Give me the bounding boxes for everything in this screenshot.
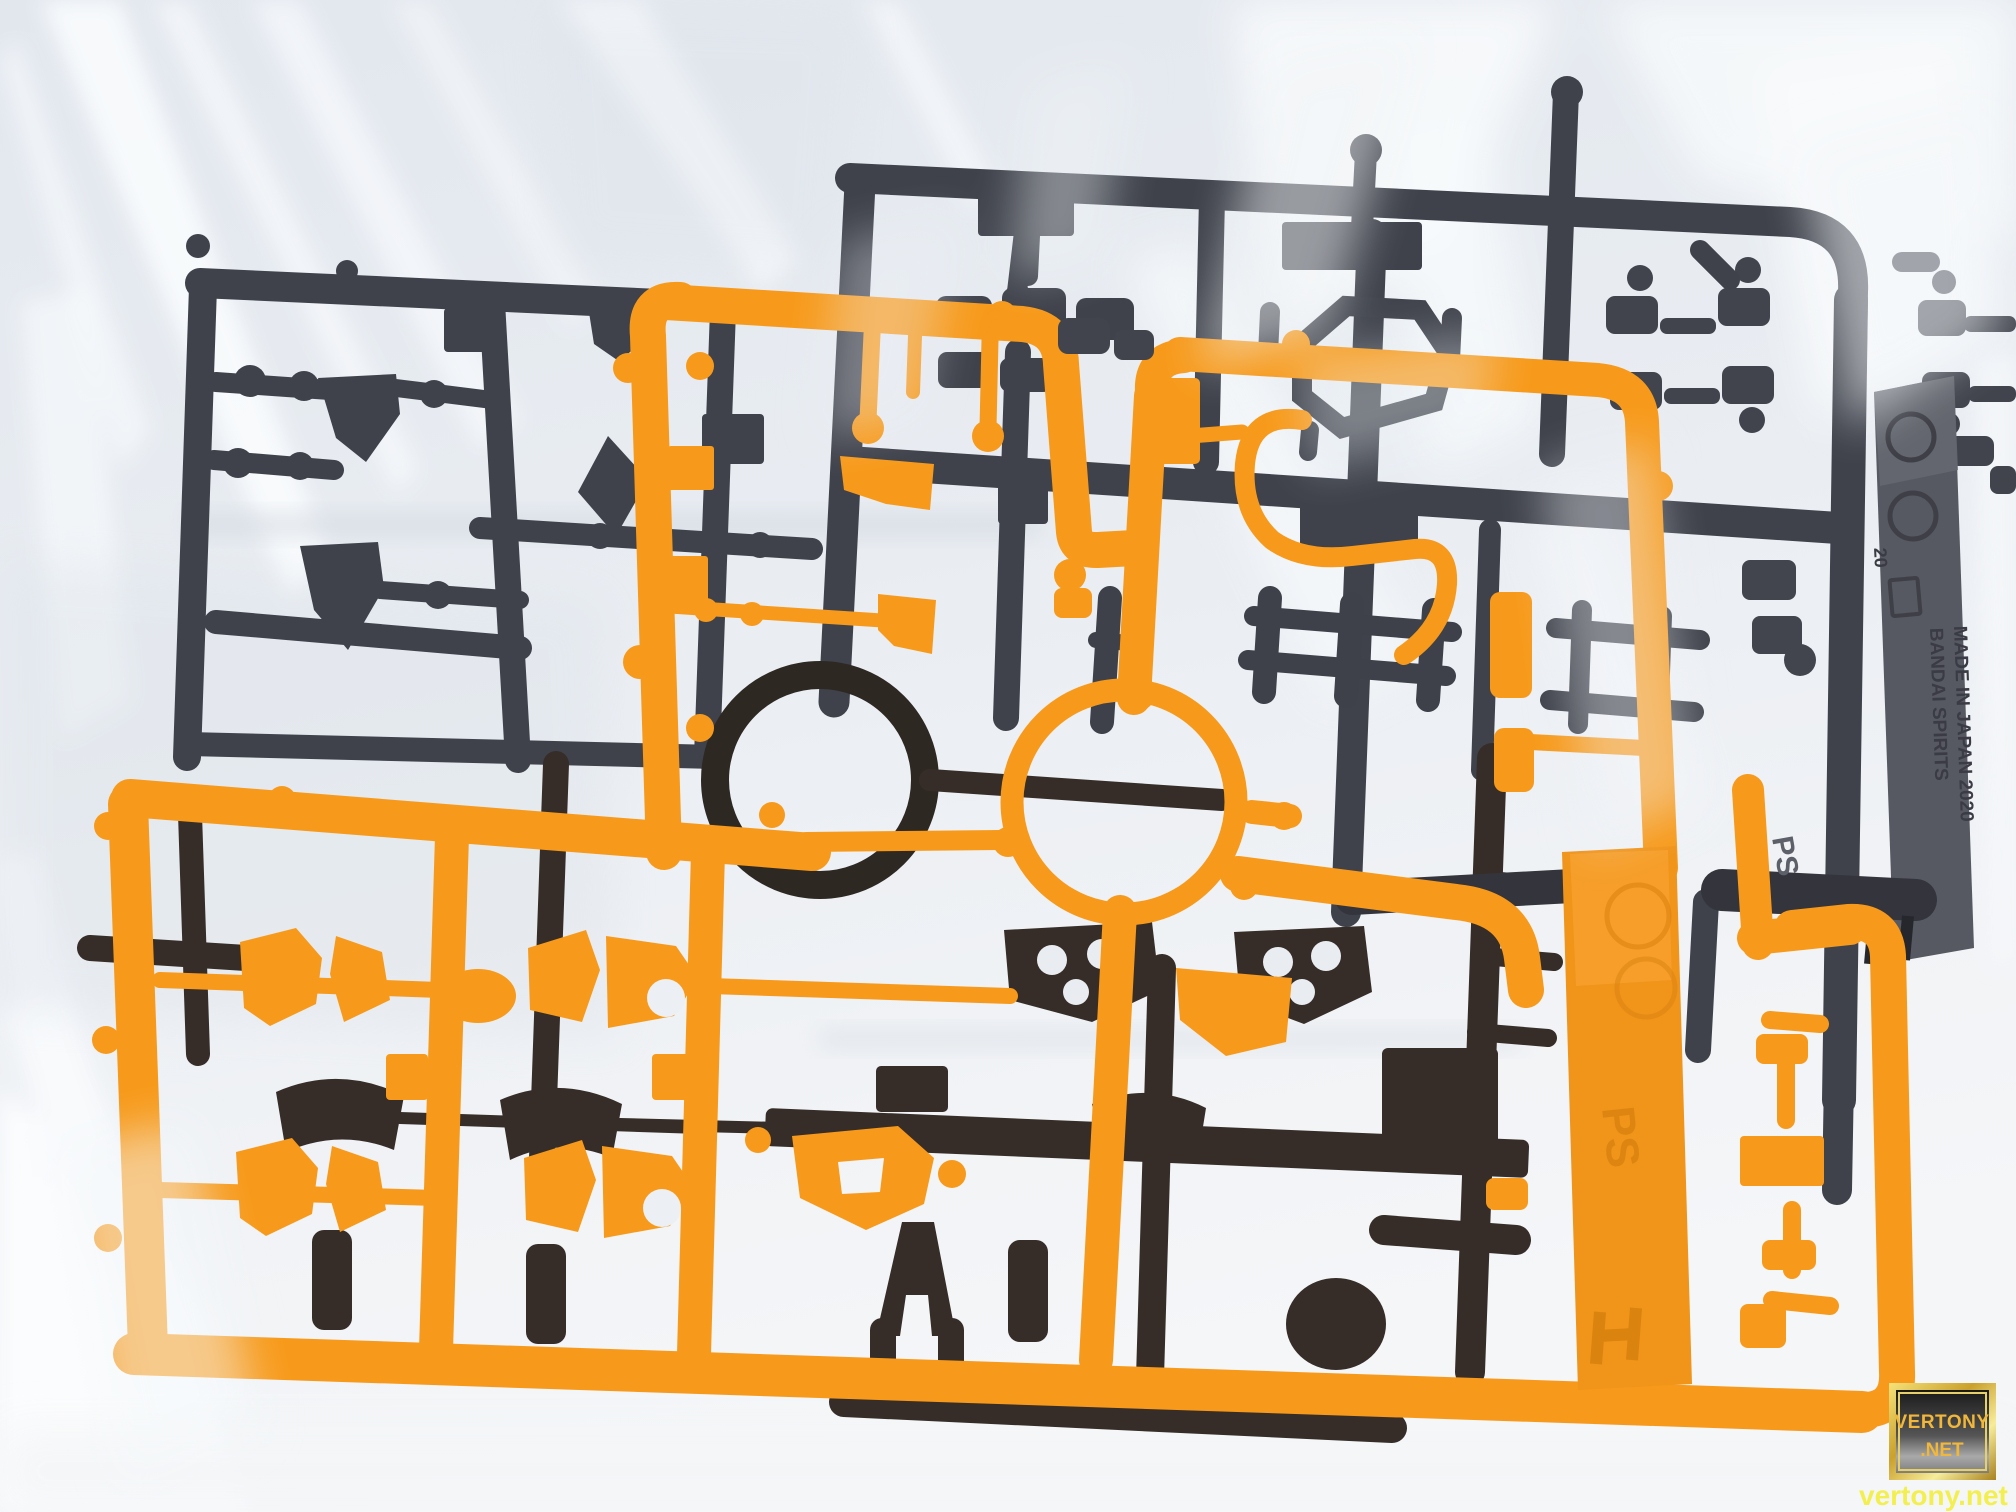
svg-text:20: 20: [1870, 547, 1891, 568]
svg-text:vertony.net: vertony.net: [1859, 1480, 2008, 1511]
svg-text:.NET: .NET: [1920, 1440, 1964, 1461]
svg-text:PS: PS: [1592, 1104, 1650, 1170]
svg-text:PS: PS: [1765, 833, 1804, 878]
svg-text:VERTONY: VERTONY: [1894, 1412, 1989, 1433]
